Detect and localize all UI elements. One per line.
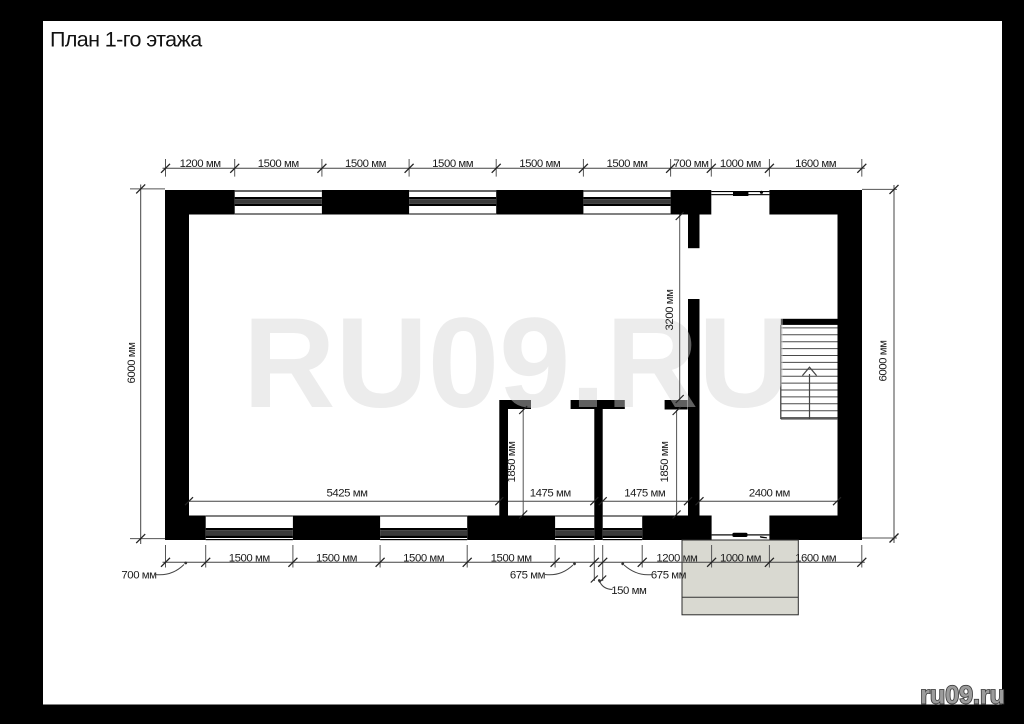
svg-text:1475 мм: 1475 мм [624,488,666,500]
svg-text:1000 мм: 1000 мм [720,552,762,564]
svg-text:5425 мм: 5425 мм [326,488,368,500]
svg-text:1500 мм: 1500 мм [519,158,561,170]
svg-text:2400 мм: 2400 мм [749,488,791,500]
svg-text:1500 мм: 1500 мм [403,552,445,564]
svg-text:RU09.RU: RU09.RU [243,292,791,435]
svg-text:План 1-го этажа: План 1-го этажа [50,28,202,52]
svg-text:1500 мм: 1500 мм [258,158,300,170]
svg-text:1200 мм: 1200 мм [656,552,698,564]
svg-text:1500 мм: 1500 мм [491,552,533,564]
svg-text:1475 мм: 1475 мм [530,488,572,500]
svg-text:675 мм: 675 мм [510,570,546,582]
svg-text:700 мм: 700 мм [121,570,157,582]
svg-text:675 мм: 675 мм [651,570,687,582]
svg-text:1600 мм: 1600 мм [795,158,837,170]
svg-text:1000 мм: 1000 мм [720,158,762,170]
svg-text:1500 мм: 1500 мм [229,552,271,564]
svg-text:1500 мм: 1500 мм [316,552,358,564]
svg-text:3200 мм: 3200 мм [664,289,676,331]
svg-text:1500 мм: 1500 мм [606,158,648,170]
svg-text:6000 мм: 6000 мм [878,340,890,382]
svg-text:700 мм: 700 мм [673,158,709,170]
svg-text:1500 мм: 1500 мм [345,158,387,170]
svg-text:1850 мм: 1850 мм [506,441,518,483]
svg-text:1500 мм: 1500 мм [432,158,474,170]
svg-text:150 мм: 150 мм [611,585,647,597]
svg-text:1200 мм: 1200 мм [180,158,222,170]
svg-text:1600 мм: 1600 мм [795,552,837,564]
svg-text:6000 мм: 6000 мм [126,342,138,384]
svg-text:ru09.ru: ru09.ru [920,682,1005,710]
svg-text:1850 мм: 1850 мм [659,441,671,483]
